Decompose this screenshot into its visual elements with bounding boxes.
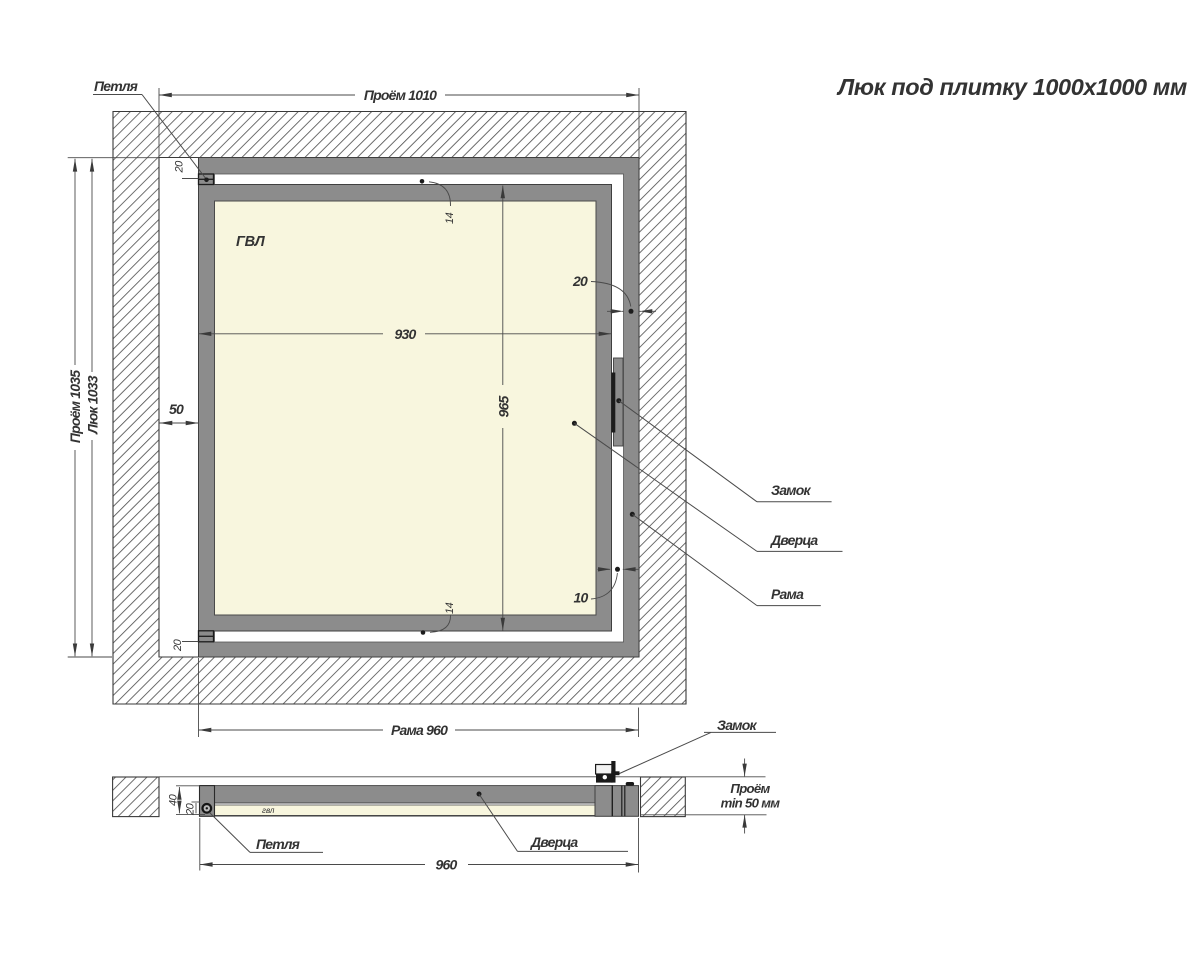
- svg-text:10: 10: [574, 590, 589, 606]
- svg-text:гвл: гвл: [262, 806, 275, 815]
- svg-text:Рама 960: Рама 960: [391, 722, 448, 738]
- svg-text:Рама: Рама: [771, 586, 804, 602]
- svg-text:40: 40: [168, 793, 180, 806]
- svg-text:20: 20: [172, 638, 184, 652]
- svg-text:Проём 1035: Проём 1035: [67, 370, 83, 443]
- svg-text:930: 930: [395, 326, 417, 342]
- svg-text:20: 20: [174, 160, 186, 174]
- svg-text:20: 20: [572, 273, 588, 289]
- svg-text:50: 50: [169, 401, 184, 417]
- svg-text:14: 14: [444, 602, 456, 614]
- svg-text:960: 960: [436, 857, 458, 873]
- svg-text:Проём 1010: Проём 1010: [364, 87, 437, 103]
- svg-text:ГВЛ: ГВЛ: [236, 234, 266, 250]
- svg-text:Люк под плитку 1000х1000 мм: Люк под плитку 1000х1000 мм: [836, 74, 1187, 100]
- svg-text:Дверца: Дверца: [530, 834, 578, 850]
- svg-text:Люк 1033: Люк 1033: [85, 375, 101, 434]
- svg-text:min 50 мм: min 50 мм: [721, 796, 781, 811]
- svg-text:20: 20: [185, 802, 197, 816]
- svg-text:Петля: Петля: [256, 836, 300, 852]
- svg-text:Дверца: Дверца: [770, 532, 818, 548]
- svg-text:Замок: Замок: [771, 482, 811, 498]
- svg-text:Замок: Замок: [717, 717, 757, 733]
- svg-text:14: 14: [444, 212, 456, 224]
- svg-text:965: 965: [496, 396, 512, 418]
- svg-text:Петля: Петля: [94, 78, 138, 94]
- svg-text:Проём: Проём: [730, 781, 770, 796]
